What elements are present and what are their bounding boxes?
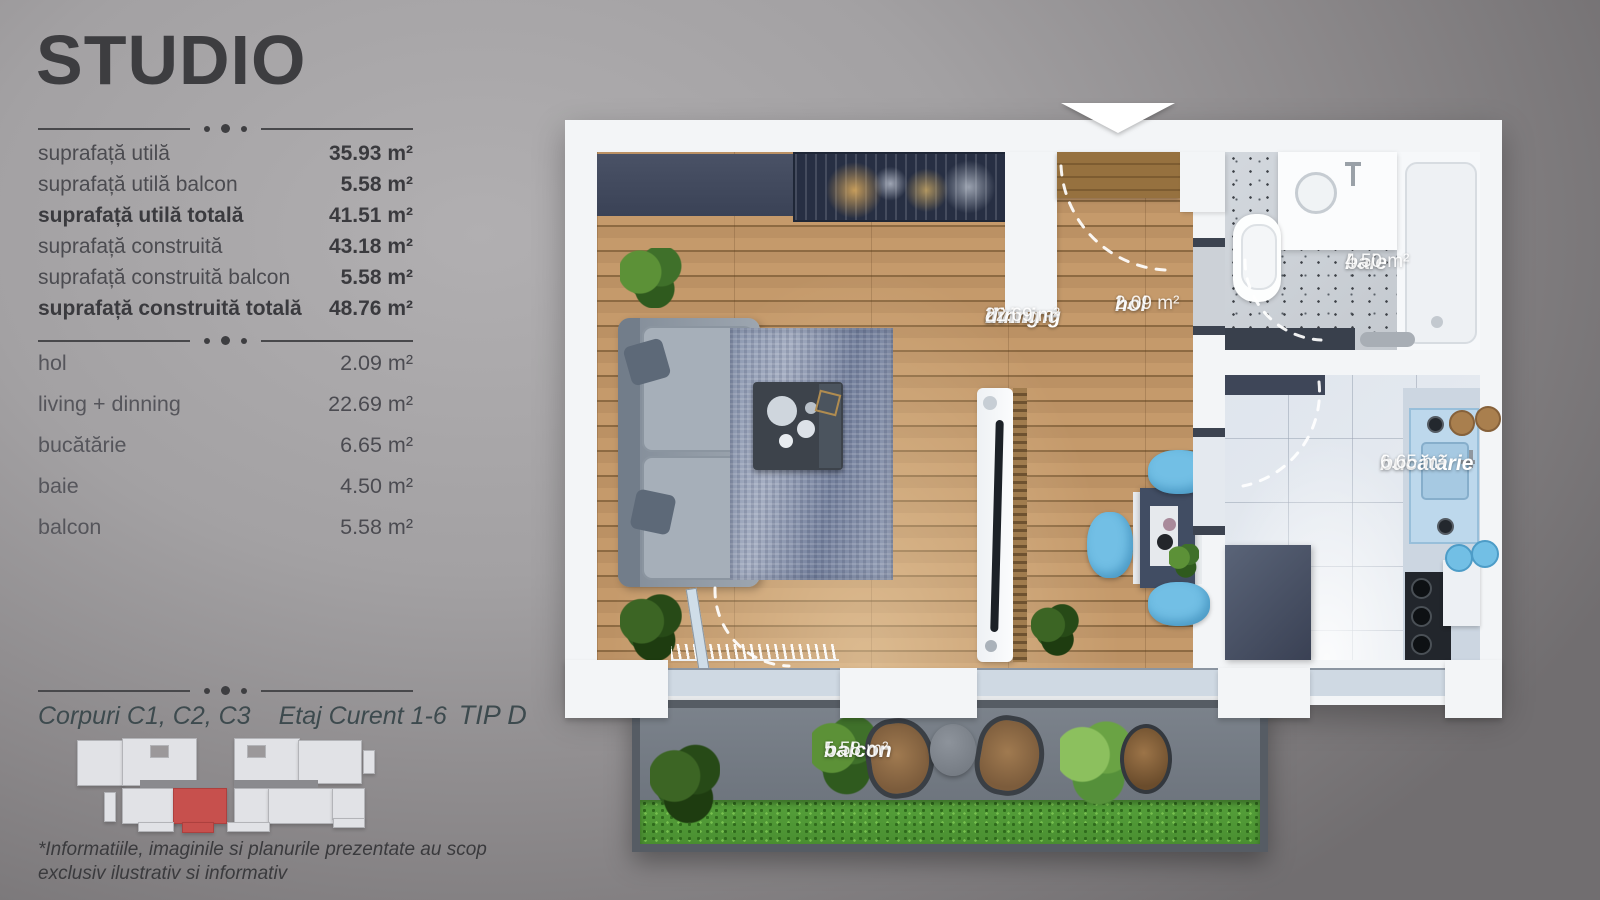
area-specs-list: suprafață utilă 35.93 m² suprafață utilă… [38, 142, 413, 328]
room-row: hol 2.09 m² [38, 351, 413, 392]
divider-line [261, 128, 413, 130]
grass-strip [640, 800, 1260, 844]
dot-icon [241, 338, 247, 344]
footprint-block [333, 818, 365, 828]
bathroom-door-arc [1245, 260, 1321, 340]
room-area: 6.65 m² [1380, 451, 1444, 475]
divider-line [38, 128, 190, 130]
room-label: balcon [38, 515, 101, 540]
dot-icon [204, 688, 210, 694]
balcony: balcon 5.58 m² [632, 700, 1268, 852]
disclaimer-line2: exclusiv ilustrativ si informativ [38, 862, 498, 886]
footprint-block [77, 740, 124, 786]
spec-label: suprafață utilă totală [38, 204, 243, 228]
room-value: 6.65 m² [340, 433, 413, 458]
spec-row-total: suprafață construită totală 48.76 m² [38, 297, 413, 328]
room-area: 2.09 m² [1115, 292, 1179, 316]
footprint-block [227, 822, 270, 832]
footprint-block [104, 792, 116, 822]
spec-row-total: suprafață utilă totală 41.51 m² [38, 204, 413, 235]
footprint-block [234, 738, 300, 786]
disclaimer-text: *Informatiile, imaginile si planurile pr… [38, 838, 498, 886]
divider-line [261, 340, 413, 342]
dot-icon [241, 688, 247, 694]
spec-label: suprafață construită totală [38, 297, 302, 321]
footprint-block [363, 750, 375, 774]
room-row: balcon 5.58 m² [38, 515, 413, 556]
floor-plan: living + dinning 22.69 m² hol 2.09 m² ba… [565, 120, 1502, 705]
spec-label: suprafață utilă balcon [38, 173, 238, 197]
footprint-notch [247, 745, 266, 758]
room-label: living + dinning [38, 392, 181, 417]
divider-top [38, 124, 413, 133]
divider-line [38, 340, 190, 342]
page-title: STUDIO [36, 20, 306, 100]
disclaimer-line1: *Informatiile, imaginile si planurile pr… [38, 838, 498, 862]
room-value: 22.69 m² [328, 392, 413, 417]
dot-icon [221, 336, 230, 345]
spec-row: suprafață utilă balcon 5.58 m² [38, 173, 413, 204]
highlighted-unit [173, 788, 227, 824]
room-value: 4.50 m² [340, 474, 413, 499]
balcony-plant [650, 744, 720, 824]
balcony-chair [970, 711, 1051, 802]
room-areas-list: hol 2.09 m² living + dinning 22.69 m² bu… [38, 351, 413, 556]
dot-icon [204, 126, 210, 132]
dot-icon [221, 686, 230, 695]
balcony-pot [1120, 724, 1172, 794]
footprint-block [332, 788, 365, 820]
corpuri-text: Corpuri C1, C2, C3 [38, 702, 251, 730]
room-area: 22.69 m² [985, 304, 1060, 328]
divider-bottom [38, 686, 413, 695]
spec-label: suprafață construită [38, 235, 222, 259]
room-label: hol [38, 351, 67, 376]
spec-value: 48.76 m² [329, 297, 413, 321]
building-footprint-diagram [68, 736, 378, 832]
spec-value: 5.58 m² [341, 173, 413, 197]
kitchen-door-arc [1243, 382, 1320, 486]
spec-row: suprafață construită balcon 5.58 m² [38, 266, 413, 297]
door-swing-arcs [565, 120, 1502, 705]
highlighted-unit-balcony [182, 822, 214, 833]
divider-dots [204, 336, 247, 345]
room-value: 5.58 m² [340, 515, 413, 540]
room-row: bucătărie 6.65 m² [38, 433, 413, 474]
balcony-door-arc [715, 588, 789, 666]
room-area: 4.50 m² [1345, 250, 1409, 274]
entrance-door-arc [1061, 166, 1166, 270]
dot-icon [241, 126, 247, 132]
etaj-text: Etaj Curent 1-6 [279, 702, 447, 730]
spec-value: 43.18 m² [329, 235, 413, 259]
spec-label: suprafață construită balcon [38, 266, 290, 290]
divider-middle [38, 336, 413, 345]
spec-value: 35.93 m² [329, 142, 413, 166]
footprint-notch [150, 745, 169, 758]
spec-label: suprafață utilă [38, 142, 170, 166]
footprint-block [268, 788, 334, 824]
divider-line [261, 690, 413, 692]
divider-line [38, 690, 190, 692]
room-value: 2.09 m² [340, 351, 413, 376]
dot-icon [221, 124, 230, 133]
room-area: 5.58 m² [824, 738, 888, 762]
room-label: bucătărie [38, 433, 126, 458]
footprint-block [138, 822, 174, 832]
dot-icon [204, 338, 210, 344]
building-info-line: Corpuri C1, C2, C3Etaj Curent 1-6TIP D [38, 700, 527, 731]
divider-dots [204, 686, 247, 695]
spec-value: 5.58 m² [341, 266, 413, 290]
room-label: baie [38, 474, 79, 499]
apartment-brochure-page: STUDIO suprafață utilă 35.93 m² suprafaț… [0, 0, 1600, 900]
footprint-block [234, 788, 270, 824]
room-row: baie 4.50 m² [38, 474, 413, 515]
tip-text: TIP D [459, 700, 527, 730]
divider-dots [204, 124, 247, 133]
balcony-table [930, 724, 976, 776]
footprint-block [298, 740, 362, 784]
room-row: living + dinning 22.69 m² [38, 392, 413, 433]
spec-row: suprafață construită 43.18 m² [38, 235, 413, 266]
spec-row: suprafață utilă 35.93 m² [38, 142, 413, 173]
footprint-block [122, 788, 176, 824]
spec-value: 41.51 m² [329, 204, 413, 228]
